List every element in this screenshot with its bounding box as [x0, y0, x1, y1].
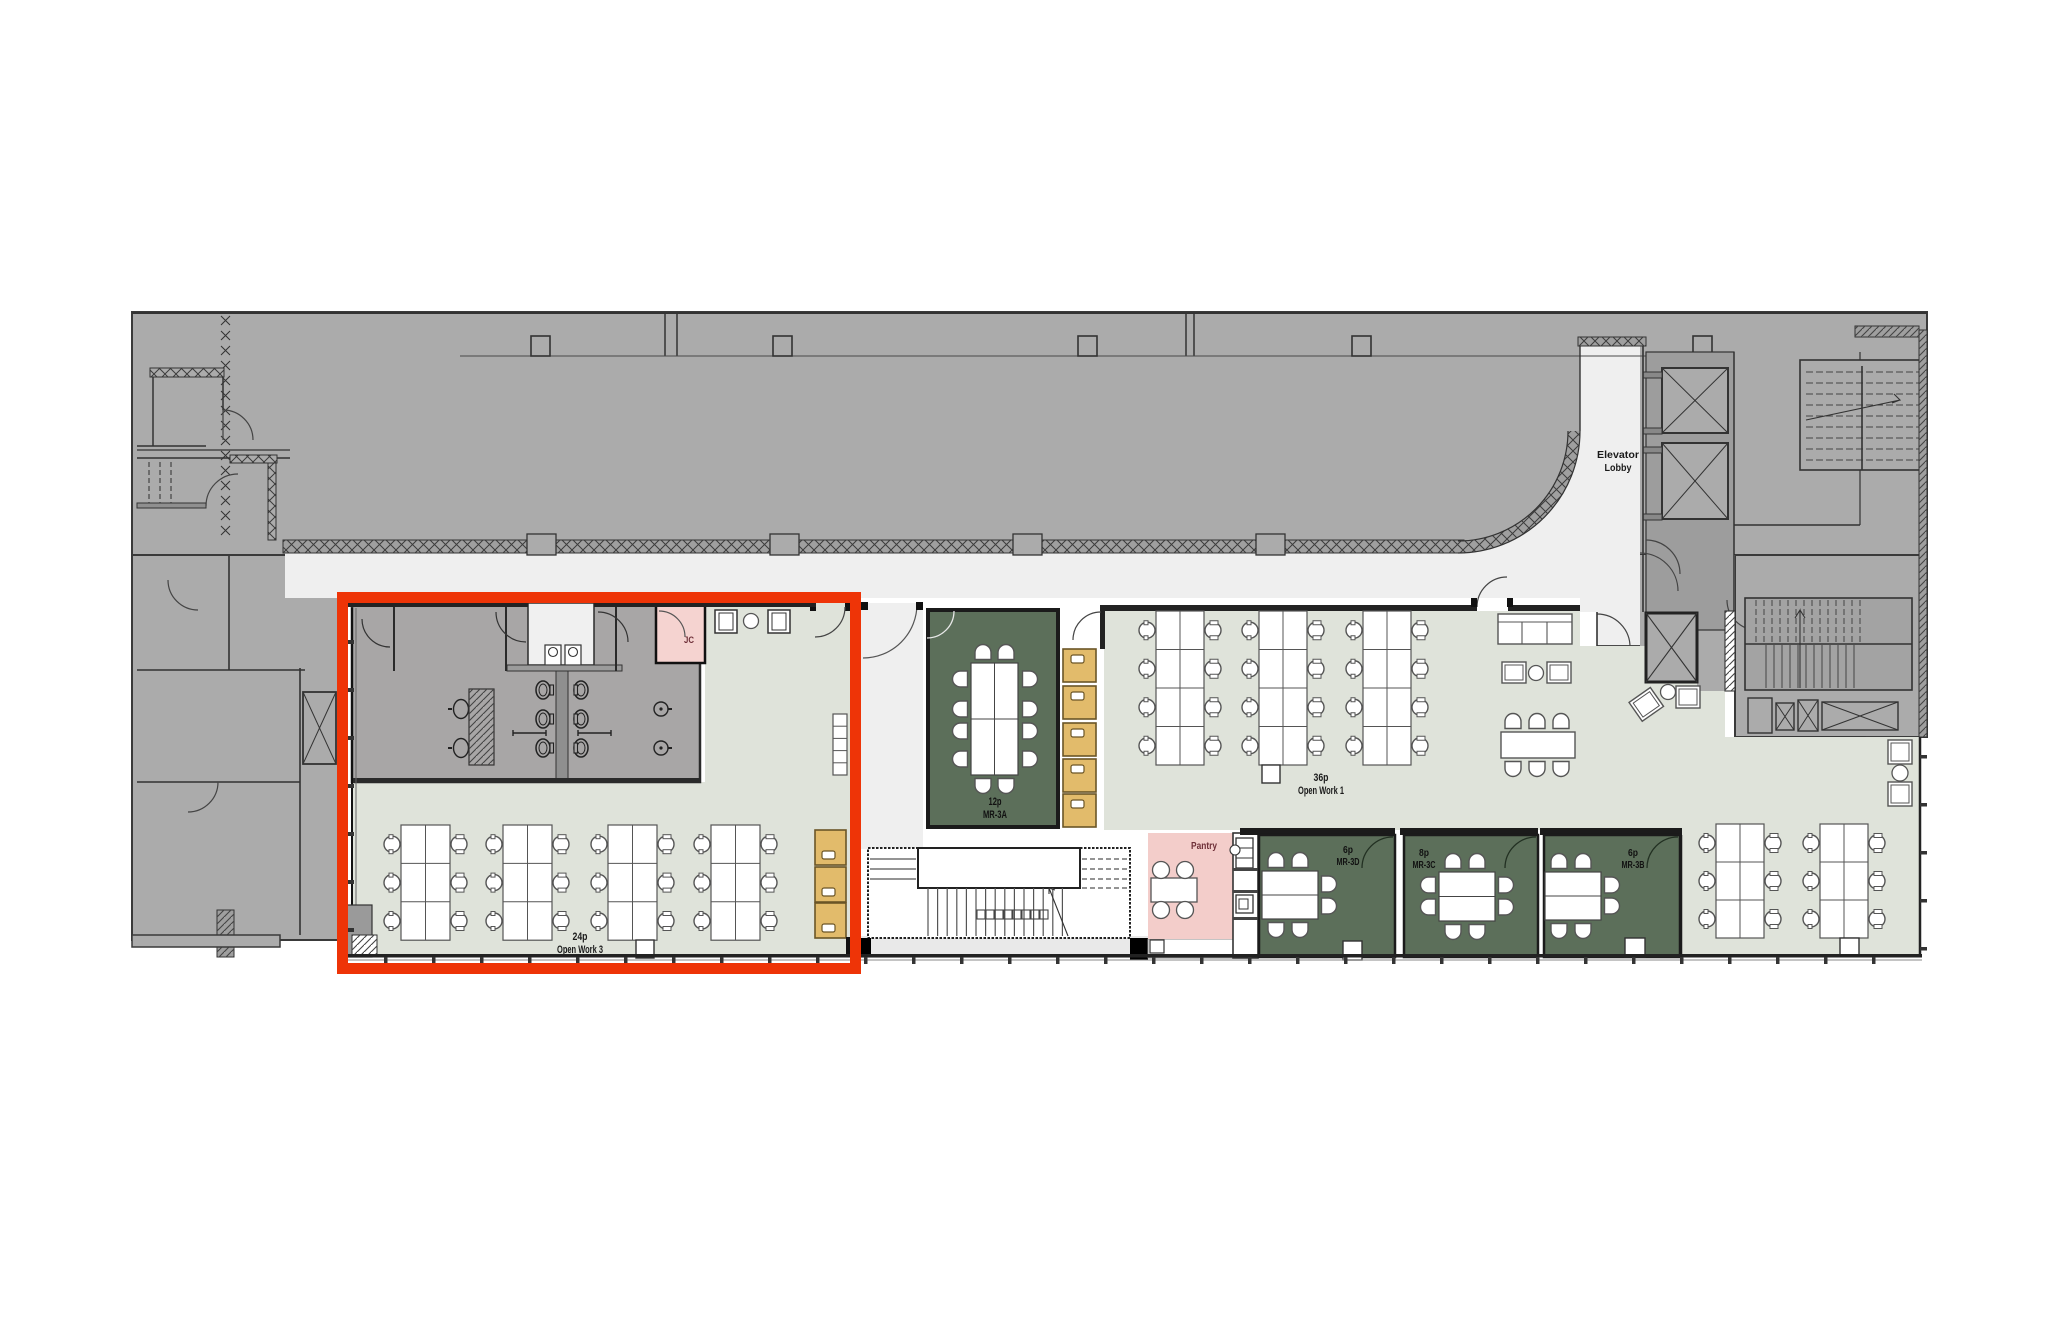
svg-text:Pantry: Pantry	[1191, 840, 1217, 852]
svg-text:Open Work 1: Open Work 1	[1298, 785, 1344, 797]
svg-text:MR-3D: MR-3D	[1337, 856, 1360, 868]
svg-text:6p: 6p	[1343, 844, 1353, 856]
svg-text:MR-3B: MR-3B	[1622, 859, 1645, 871]
svg-text:MR-3A: MR-3A	[983, 809, 1007, 821]
svg-text:36p: 36p	[1314, 772, 1329, 784]
svg-text:MR-3C: MR-3C	[1413, 859, 1436, 871]
svg-text:8p: 8p	[1419, 847, 1429, 859]
svg-text:Elevator: Elevator	[1597, 449, 1639, 461]
svg-text:12p: 12p	[989, 796, 1002, 808]
svg-text:JC: JC	[684, 635, 694, 646]
svg-text:24p: 24p	[573, 931, 588, 943]
svg-text:6p: 6p	[1628, 847, 1638, 859]
svg-text:Lobby: Lobby	[1605, 462, 1632, 474]
